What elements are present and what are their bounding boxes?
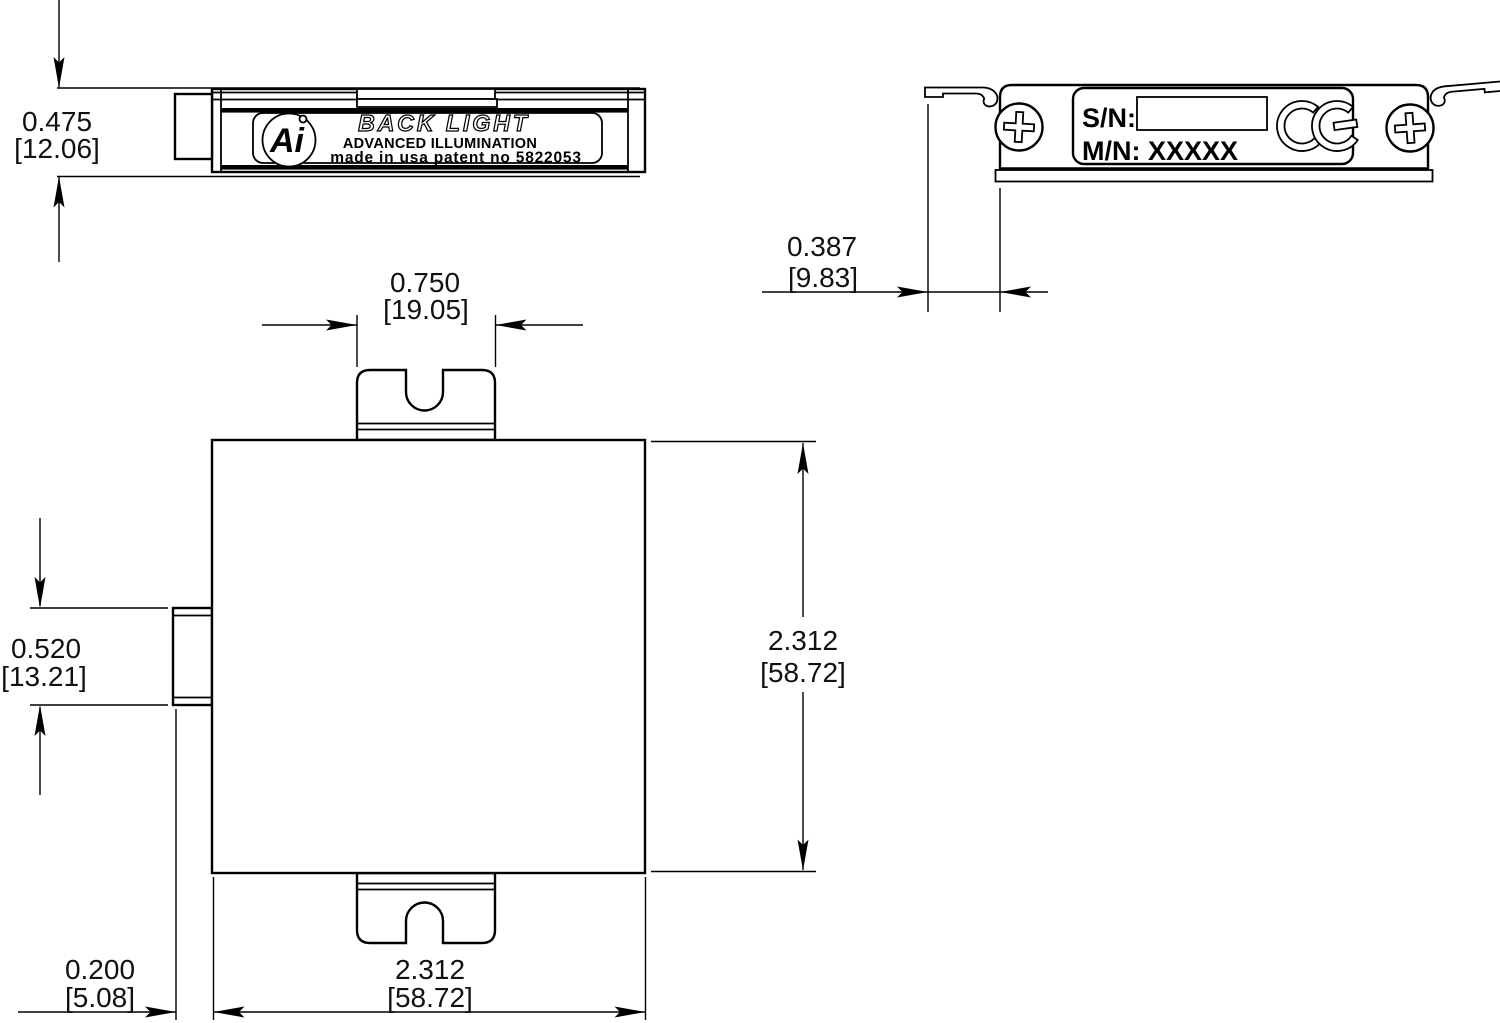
dim-value-mm: [58.72]	[760, 657, 846, 688]
front-body	[212, 440, 645, 873]
serial-number-label: S/N:	[1082, 103, 1136, 133]
screw-icon	[996, 104, 1043, 151]
dim-value-in: 0.387	[787, 231, 857, 262]
front-view	[173, 370, 645, 943]
backlight-dimension-drawing: Ai BACK LIGHT ADVANCED ILLUMINATION made…	[0, 0, 1500, 1023]
dim-value-mm: [19.05]	[383, 294, 469, 325]
dim-value-mm: [13.21]	[1, 661, 87, 692]
dim-body-height: 2.312 [58.72]	[651, 442, 846, 872]
model-number-label: M/N: XXXXX	[1082, 136, 1238, 166]
dim-value-in: 0.200	[65, 954, 135, 985]
mounting-clip-left	[925, 88, 997, 107]
dim-connector-height: 0.520 [13.21]	[1, 518, 168, 795]
side-tab-edge-upper	[357, 89, 495, 99]
dim-connector-depth: 0.200 [5.08]	[18, 709, 176, 1020]
technical-drawing-page: Ai BACK LIGHT ADVANCED ILLUMINATION made…	[0, 0, 1500, 1023]
side-tab-edge-lower	[357, 99, 497, 107]
ai-logo-text: Ai	[269, 122, 306, 160]
dim-value-in: 0.520	[11, 633, 81, 664]
ai-logo-ring	[300, 116, 307, 123]
dim-value-mm: [58.72]	[387, 982, 473, 1013]
side-connector	[175, 94, 212, 159]
side-view: Ai BACK LIGHT ADVANCED ILLUMINATION made…	[175, 89, 645, 172]
screw-icon	[1387, 105, 1434, 152]
dim-tab-width: 0.750 [19.05]	[262, 267, 583, 367]
mounting-clip-right	[1430, 81, 1500, 106]
backlight-title: BACK LIGHT	[358, 110, 530, 136]
serial-number-box	[1137, 97, 1267, 130]
dim-value-in: 2.312	[768, 625, 838, 656]
back-base-strip	[996, 170, 1433, 182]
dim-value-mm: [9.83]	[788, 262, 858, 293]
dim-value-in: 2.312	[395, 954, 465, 985]
back-view: S/N: M/N: XXXXX	[925, 81, 1500, 181]
front-connector	[173, 608, 212, 705]
dim-value-mm: [5.08]	[65, 982, 135, 1013]
made-in-usa-label: made in usa patent no 5822053	[330, 150, 581, 167]
dim-value-mm: [12.06]	[14, 133, 100, 164]
